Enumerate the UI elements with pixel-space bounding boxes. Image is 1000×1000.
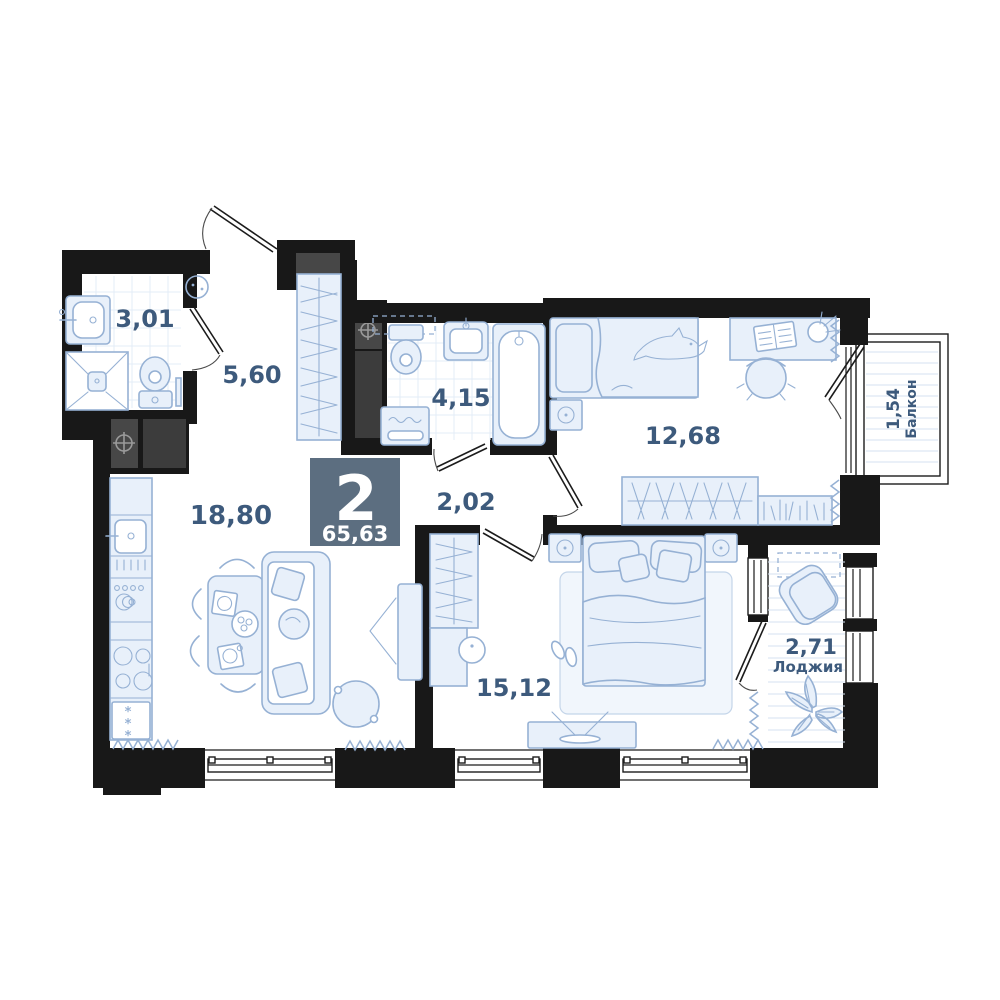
floor-plan-svg: 1,54 Балкон (0, 0, 1000, 1000)
balcony: 1,54 Балкон (856, 334, 948, 484)
window-bedroom-master-2 (620, 750, 750, 780)
single-bed-icon (550, 318, 707, 398)
svg-text:*: * (125, 729, 132, 744)
desk-icon (730, 312, 840, 360)
double-bed-icon (583, 536, 705, 686)
toilet-icon-2 (389, 325, 423, 374)
bathtub-icon (493, 324, 545, 445)
hallway: 5,60 (186, 274, 341, 440)
dining-table-icon (191, 560, 265, 693)
balcony-area: 1,54 (884, 388, 904, 430)
radiator-icon (113, 740, 178, 749)
kitchen-counter-icon: * * * (106, 478, 152, 744)
toilet-icon (139, 357, 172, 408)
book-icon (754, 321, 797, 351)
washing-machine-icon (381, 407, 429, 445)
loggia-label: Лоджия (773, 658, 843, 676)
fridge-icon: * * * (112, 702, 150, 744)
window-bedroom-master-1 (455, 750, 543, 780)
bathroom-area: 4,15 (431, 384, 490, 412)
hall-area: 2,02 (436, 488, 495, 516)
total-area-badge: 2 65,63 (310, 458, 400, 546)
armchair-icon (775, 561, 842, 629)
badge-total-area: 65,63 (322, 522, 388, 546)
tv-stand-icon (370, 584, 422, 680)
insulation-mark-icon-3 (750, 692, 758, 740)
sink-icon-2 (444, 318, 488, 360)
sofa-icon (262, 552, 330, 714)
towel-rail-icon (176, 378, 181, 406)
loggia-door (736, 621, 766, 690)
kitchen-sink-icon (115, 520, 146, 553)
balcony-label: Балкон (904, 379, 920, 438)
nightstand-icon-3 (705, 534, 737, 562)
bedroom-master-area: 15,12 (476, 674, 552, 702)
nightstand-icon (550, 400, 582, 430)
bathroom: 4,15 (373, 316, 545, 445)
fruit-bowl-icon (232, 611, 258, 637)
loggia-window (748, 558, 768, 615)
bathroom-door (434, 444, 487, 471)
loggia-area: 2,71 (785, 635, 837, 659)
radiator-icon-2 (345, 741, 405, 750)
bedroom-small-area: 12,68 (645, 422, 721, 450)
bedroom-small: 12,68 (550, 312, 864, 525)
tv-stand-icon-2 (528, 712, 636, 748)
hall: 2,02 (436, 488, 495, 516)
wc-small-area: 3,01 (115, 305, 174, 333)
window-living (205, 750, 335, 780)
bedroom-master-door (483, 529, 542, 561)
bedroom-small-door (549, 455, 582, 516)
kitchen-living-area: 18,80 (190, 501, 272, 531)
blanket-icon (279, 609, 309, 639)
floor-plan: 1,54 Балкон (0, 0, 1000, 1000)
wardrobe-icon-2 (622, 477, 832, 525)
wc-small: 3,01 (60, 296, 182, 410)
nightstand-icon-2 (549, 534, 581, 562)
desk-chair-icon (737, 358, 795, 400)
radiator-icon-3 (713, 740, 763, 749)
bedroom-master: 15,12 (430, 534, 768, 749)
shower-icon (66, 352, 128, 410)
wc-small-door (190, 307, 223, 370)
entrance-door (203, 206, 277, 252)
sink-icon (60, 296, 111, 344)
wardrobe-icon-3 (430, 534, 485, 686)
hallway-area: 5,60 (222, 361, 281, 389)
wardrobe-icon (297, 274, 341, 440)
